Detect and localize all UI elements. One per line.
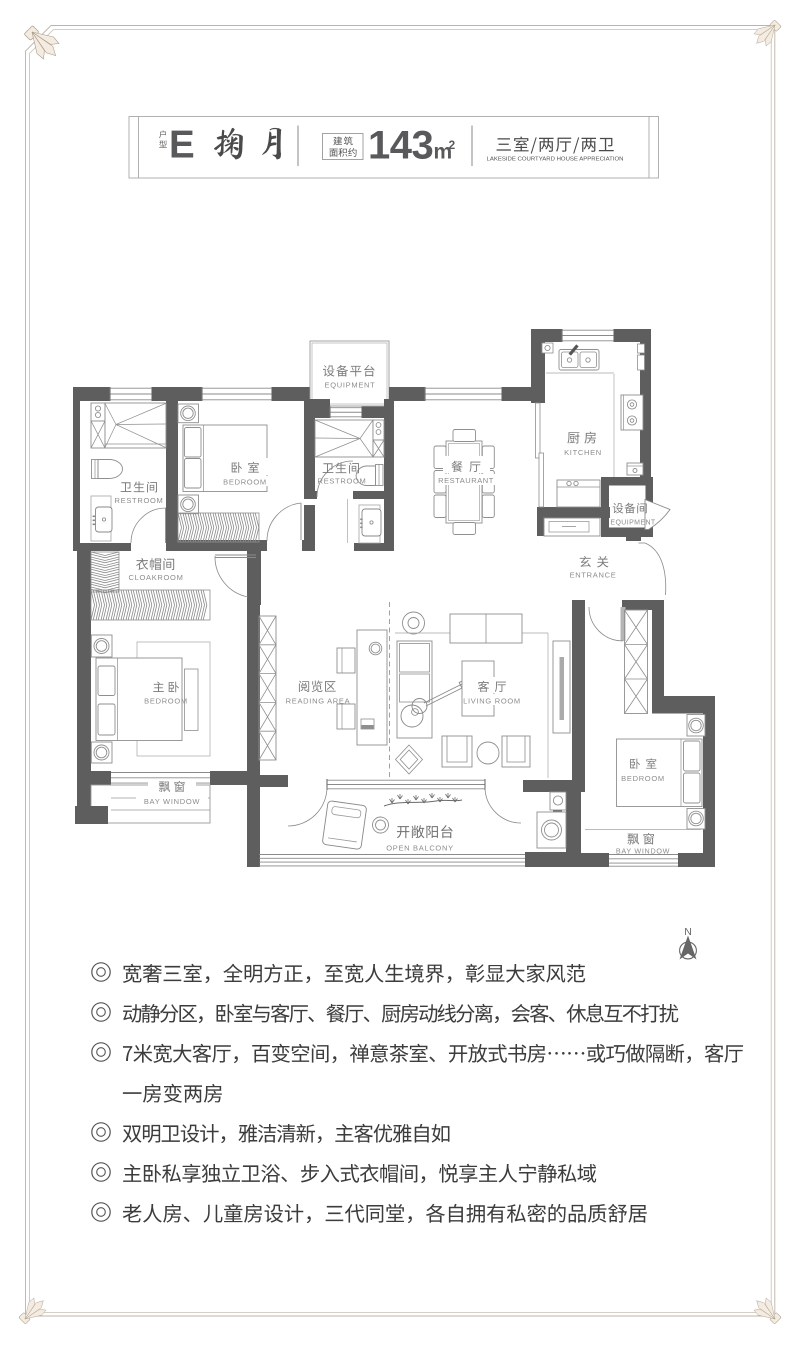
svg-text:LAKESIDE COURTYARD HOUSE APPRE: LAKESIDE COURTYARD HOUSE APPRECIATION [487, 157, 624, 163]
svg-text:2: 2 [449, 138, 456, 152]
svg-text:RESTROOM: RESTROOM [318, 477, 367, 486]
svg-text:BEDROOM: BEDROOM [621, 774, 665, 783]
svg-text:EQUIPMENT: EQUIPMENT [325, 381, 376, 390]
svg-text:ENTRANCE: ENTRANCE [570, 571, 617, 580]
svg-text:LIVING ROOM: LIVING ROOM [463, 697, 521, 706]
svg-text:RESTROOM: RESTROOM [115, 496, 164, 505]
svg-text:CLOAKROOM: CLOAKROOM [128, 573, 183, 582]
svg-text:RESTAURANT: RESTAURANT [438, 476, 494, 485]
svg-text:BEDROOM: BEDROOM [144, 697, 188, 706]
svg-text:BAY WINDOW: BAY WINDOW [144, 797, 201, 806]
svg-text:BAY WINDOW: BAY WINDOW [616, 847, 670, 856]
svg-text:143: 143 [368, 124, 433, 168]
svg-text:EQUIPMENT: EQUIPMENT [610, 520, 656, 527]
svg-text:READING AREA: READING AREA [286, 697, 351, 706]
svg-text:KITCHEN: KITCHEN [564, 448, 602, 457]
svg-text:BEDROOM: BEDROOM [223, 478, 267, 487]
svg-text:OPEN BALCONY: OPEN BALCONY [386, 844, 454, 853]
svg-text:E: E [169, 124, 195, 167]
